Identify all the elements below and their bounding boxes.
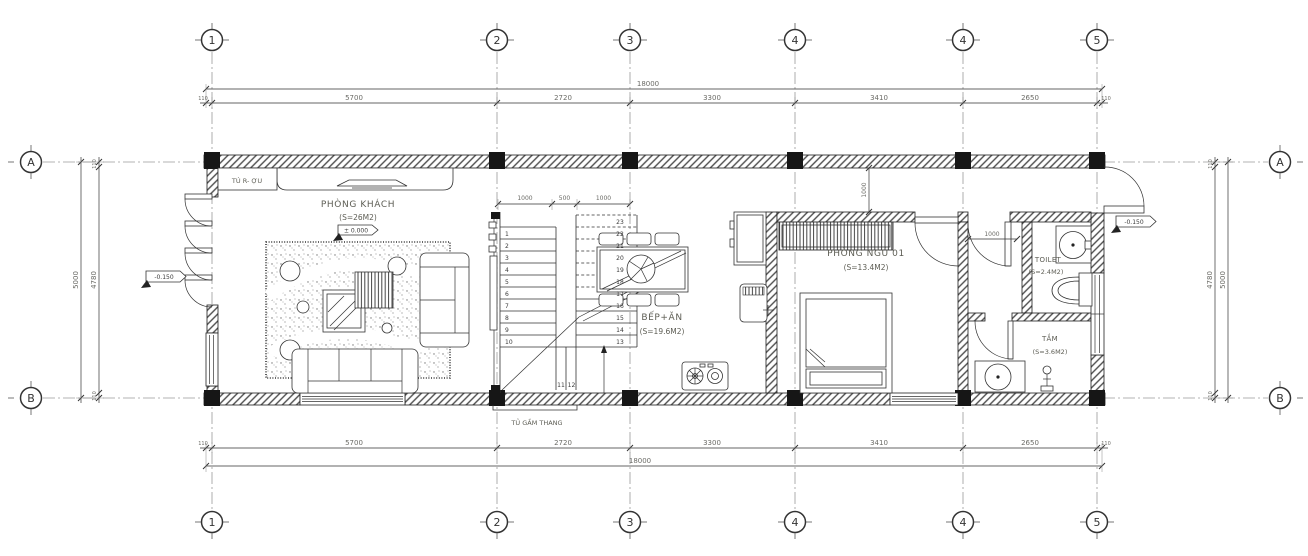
step-6: 6: [505, 291, 509, 298]
toilet-name: TOILET: [1034, 256, 1062, 264]
step-13: 13: [616, 339, 624, 346]
bath-door: [975, 321, 1013, 359]
living-room: TÚ R- ỢU PHÒNG KHÁCH (S=26M2) ± 0.000: [218, 168, 469, 393]
dim-bot-110-left: 110: [198, 441, 208, 447]
step-18: 18: [616, 279, 624, 286]
dim-left-5000: 5000: [72, 271, 80, 289]
stair-break-line: [502, 285, 645, 390]
level-entry-left-value: -0.150: [154, 274, 174, 281]
vestibule-dimension: 1000: [965, 231, 1020, 242]
wine-cabinet-label: TÚ R- ỢU: [231, 176, 262, 185]
step-9: 9: [505, 327, 509, 334]
stair-direction-arrow: [601, 345, 607, 393]
dim-bot-3300: 3300: [703, 439, 721, 447]
bed: [800, 293, 892, 393]
bath-counter: [975, 361, 1025, 392]
stair-rail: [489, 212, 500, 393]
sofa: [292, 349, 418, 393]
grid-row-b-right: B: [1276, 392, 1284, 405]
wardrobe: [779, 222, 893, 250]
grid-row-a-right: A: [1276, 156, 1284, 169]
grid-col-4-top: 4: [792, 34, 799, 47]
level-flag-zero: ± 0.000: [333, 225, 378, 241]
cushion: [382, 323, 392, 333]
cushion: [297, 301, 309, 313]
dim-right-5000: 5000: [1219, 271, 1227, 289]
stair-dim-1000a: 1000: [517, 195, 532, 202]
bedroom-door: [915, 217, 958, 266]
grid-col-4b-bottom: 4: [960, 516, 967, 529]
level-flag-entry-left: -0.150: [141, 271, 186, 288]
grid-col-2-top: 2: [494, 34, 501, 47]
grid-col-1-top: 1: [209, 34, 216, 47]
armchair: [420, 253, 469, 347]
toilet-area: (S=2.4M2): [1029, 268, 1064, 276]
step-21: 21: [616, 243, 624, 250]
dim-right-110-top: 110: [1208, 159, 1214, 169]
window-bedroom: [890, 393, 958, 405]
step-11: 11: [557, 382, 565, 389]
grid-col-5-bottom: 5: [1094, 516, 1101, 529]
tv-console: [277, 168, 453, 190]
shower-mixer: [1041, 366, 1053, 391]
grid-col-3-top: 3: [627, 34, 634, 47]
step-12: 12: [568, 382, 576, 389]
dining-set: [597, 233, 688, 306]
dim-bot-110-right: 110: [1101, 441, 1111, 447]
bath-room: TẮM (S=3.6M2): [975, 333, 1067, 392]
floor-plan-drawing: 1 2 3 4 4 5 1 2 3 4 4 5 A B A B 18000 11…: [0, 0, 1308, 556]
dim-bot-2650: 2650: [1021, 439, 1039, 447]
hall-depth-dimension: 1000: [861, 165, 872, 215]
dim-left-110-top: 110: [92, 159, 98, 169]
step-8: 8: [505, 315, 509, 322]
wine-cabinet: TÚ R- ỢU: [218, 168, 277, 190]
hall-dim-1000: 1000: [861, 182, 868, 197]
under-stair-cabinet-text: TỦ GẦM THANG: [510, 417, 562, 427]
bath-area: (S=3.6M2): [1033, 348, 1068, 356]
step-7: 7: [505, 303, 509, 310]
dim-top-2720: 2720: [554, 94, 572, 102]
main-entry-door: [185, 194, 212, 307]
grid-col-1-bottom: 1: [209, 516, 216, 529]
dim-top-3410: 3410: [870, 94, 888, 102]
step-20: 20: [616, 255, 624, 262]
step-2: 2: [505, 243, 509, 250]
dim-top-3300: 3300: [703, 94, 721, 102]
floor-plan-canvas: 1 2 3 4 4 5 1 2 3 4 4 5 A B A B 18000 11…: [0, 0, 1308, 556]
kitchen-area: (S=19.6M2): [640, 327, 685, 336]
dim-overall-bottom: 18000: [629, 457, 651, 465]
step-19: 19: [616, 267, 624, 274]
grid-col-4-bottom: 4: [792, 516, 799, 529]
grid-col-2-bottom: 2: [494, 516, 501, 529]
dim-overall-top: 18000: [637, 80, 659, 88]
tv: [337, 180, 407, 186]
grid-row-a-left: A: [27, 156, 35, 169]
dimension-right: 4780 5000 110 110: [1206, 157, 1233, 403]
step-16: 16: [616, 303, 624, 310]
window-left-wall: [206, 333, 218, 386]
level-entry-right-value: -0.150: [1124, 219, 1144, 226]
window-living: [300, 393, 405, 405]
level-zero-value: ± 0.000: [344, 228, 368, 235]
level-flag-entry-right: -0.150: [1111, 216, 1156, 233]
step-1: 1: [505, 231, 509, 238]
vestibule-door: [968, 222, 1011, 266]
grid-row-b-left: B: [27, 392, 35, 405]
dim-bot-3410: 3410: [870, 439, 888, 447]
step-15: 15: [616, 315, 624, 322]
dim-right-110-bot: 110: [1208, 391, 1214, 401]
stair-dim-1000b: 1000: [596, 195, 611, 202]
cushion: [280, 261, 300, 281]
stair-dimension: 1000 500 1000: [495, 195, 633, 210]
dim-top-110-left: 110: [198, 96, 208, 102]
grid-col-4b-top: 4: [960, 34, 967, 47]
toilet-basin: [1056, 226, 1091, 263]
kitchen-name: BẾP+ĂN: [641, 311, 682, 323]
step-10: 10: [505, 339, 513, 346]
dimension-left: 5000 4780 110 110: [72, 157, 104, 403]
vestibule-dim-1000: 1000: [984, 231, 999, 238]
dim-bot-2720: 2720: [554, 439, 572, 447]
dim-top-110-right: 110: [1101, 96, 1111, 102]
ottoman: [355, 272, 393, 308]
step-22: 22: [616, 231, 624, 238]
dim-top-5700: 5700: [345, 94, 363, 102]
dim-left-110-bot: 110: [92, 391, 98, 401]
step-4: 4: [505, 267, 509, 274]
bath-name: TẮM: [1041, 333, 1058, 343]
bedroom-area: (S=13.4M2): [844, 263, 889, 272]
living-room-area: (S=26M2): [339, 213, 377, 222]
step-14: 14: [616, 327, 624, 334]
under-stair-cabinet-label: TỦ GẦM THANG: [493, 405, 577, 427]
grid-col-5-top: 5: [1094, 34, 1101, 47]
dimension-bottom: 110 5700 2720 3300 3410 2650 110 18000: [198, 439, 1111, 472]
dim-right-4780: 4780: [1206, 271, 1214, 289]
step-17: 17: [616, 291, 624, 298]
bedroom: PHÒNG NGỦ 01 (S=13.4M2) 1000: [779, 165, 905, 393]
back-door: [1104, 167, 1144, 213]
dim-top-2650: 2650: [1021, 94, 1039, 102]
grid-col-3-bottom: 3: [627, 516, 634, 529]
stair-dim-500: 500: [559, 195, 571, 202]
wc: [1052, 273, 1092, 306]
step-3: 3: [505, 255, 509, 262]
gas-stove: [682, 362, 728, 390]
dim-bot-5700: 5700: [345, 439, 363, 447]
dimension-top: 18000 110 5700 2720 3300 3410 2650 110: [198, 80, 1111, 109]
step-23: 23: [616, 219, 624, 226]
window-right-wall: [1091, 273, 1104, 355]
tall-cabinet: [730, 212, 766, 265]
step-5: 5: [505, 279, 509, 286]
living-room-name: PHÒNG KHÁCH: [321, 198, 395, 210]
bedroom-name: PHÒNG NGỦ 01: [827, 247, 905, 259]
dim-left-4780: 4780: [90, 271, 98, 289]
